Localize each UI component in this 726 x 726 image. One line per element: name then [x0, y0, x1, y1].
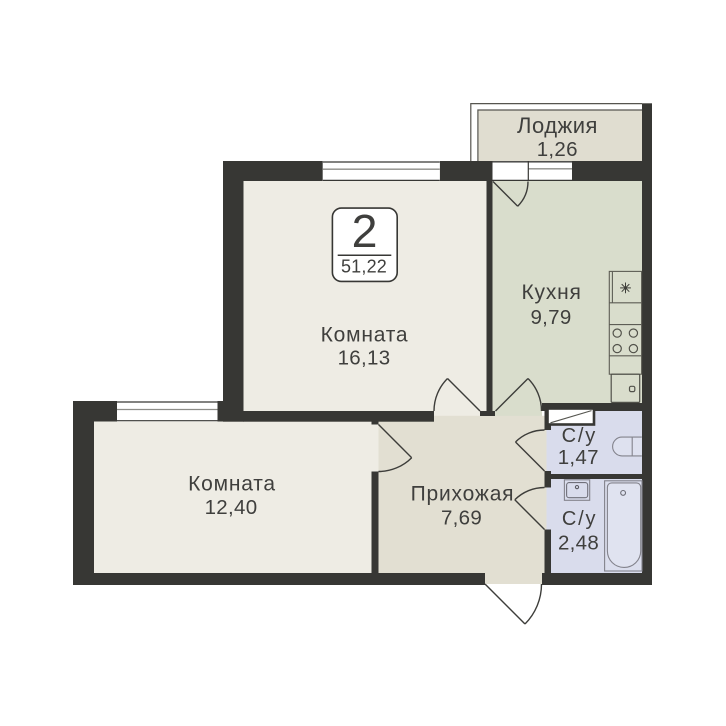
- svg-text:Комната: Комната: [321, 324, 409, 347]
- svg-text:12,40: 12,40: [205, 496, 258, 519]
- svg-text:16,13: 16,13: [338, 347, 391, 370]
- svg-text:С/у: С/у: [562, 425, 597, 447]
- svg-text:Кухня: Кухня: [521, 281, 581, 304]
- svg-text:Прихожая: Прихожая: [411, 483, 515, 506]
- svg-text:1,47: 1,47: [558, 446, 599, 469]
- svg-text:7,69: 7,69: [441, 507, 482, 530]
- svg-text:2: 2: [352, 205, 378, 257]
- svg-text:1,26: 1,26: [537, 138, 578, 161]
- svg-text:Лоджия: Лоджия: [517, 113, 598, 138]
- svg-text:Комната: Комната: [188, 473, 276, 496]
- svg-text:2,48: 2,48: [558, 532, 599, 555]
- svg-text:С/у: С/у: [562, 508, 597, 530]
- svg-text:9,79: 9,79: [530, 306, 571, 329]
- svg-text:51,22: 51,22: [341, 257, 387, 277]
